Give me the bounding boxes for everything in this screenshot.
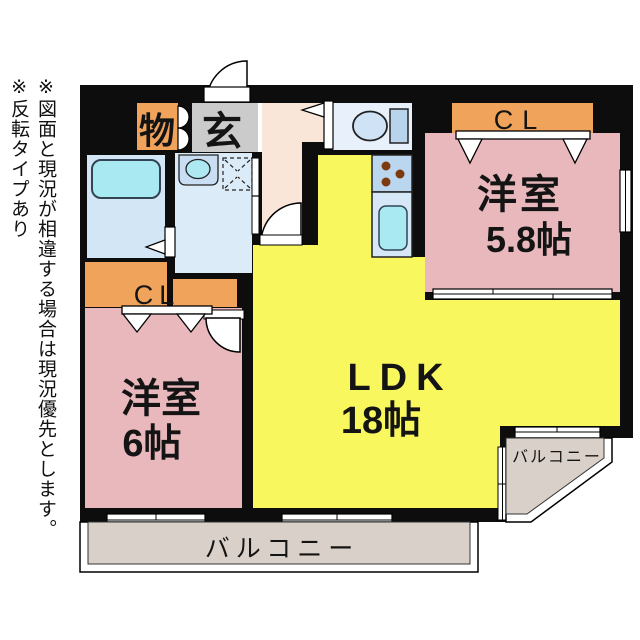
closet-left-label: CL xyxy=(134,280,181,310)
closet-top-label: CL xyxy=(494,105,547,135)
balcony-corner-label: バルコニー xyxy=(512,449,602,466)
storage-label: 物 xyxy=(139,110,175,151)
washroom-sliding-door xyxy=(252,158,259,234)
ldk-name: LDK xyxy=(347,357,452,399)
room5-8-name: 洋室 xyxy=(477,173,563,217)
window-room5-8-right xyxy=(620,170,631,232)
sink-icon xyxy=(379,206,407,250)
room5-8-size: 5.8帖 xyxy=(486,219,572,260)
window-ldk-corner-balcony xyxy=(515,427,600,438)
ldk-size: 18帖 xyxy=(341,400,421,442)
balcony-bottom-label: バルコニー xyxy=(205,535,360,563)
floorplan-page: ※図面と現況が相違する場合は現況優先とします。 ※反転タイプあり xyxy=(0,0,640,640)
sliding-door-room5-8-ldk xyxy=(433,289,612,299)
room6-name: 洋室 xyxy=(121,377,201,421)
entrance-door-arc xyxy=(204,61,250,102)
bathtub-icon xyxy=(92,160,160,198)
stove-icon xyxy=(372,155,412,192)
floor-plan: 物 玄 CL 洋室 5.8帖 LDK 18帖 CL 洋室 6帖 バルコニー バル… xyxy=(0,0,640,640)
room6-size: 6帖 xyxy=(122,423,181,465)
kitchen-counter xyxy=(372,155,412,257)
entrance-label: 玄 xyxy=(202,110,242,154)
genkan-step xyxy=(258,103,262,152)
washbasin-icon xyxy=(179,155,218,185)
toilet-icon xyxy=(353,109,408,143)
